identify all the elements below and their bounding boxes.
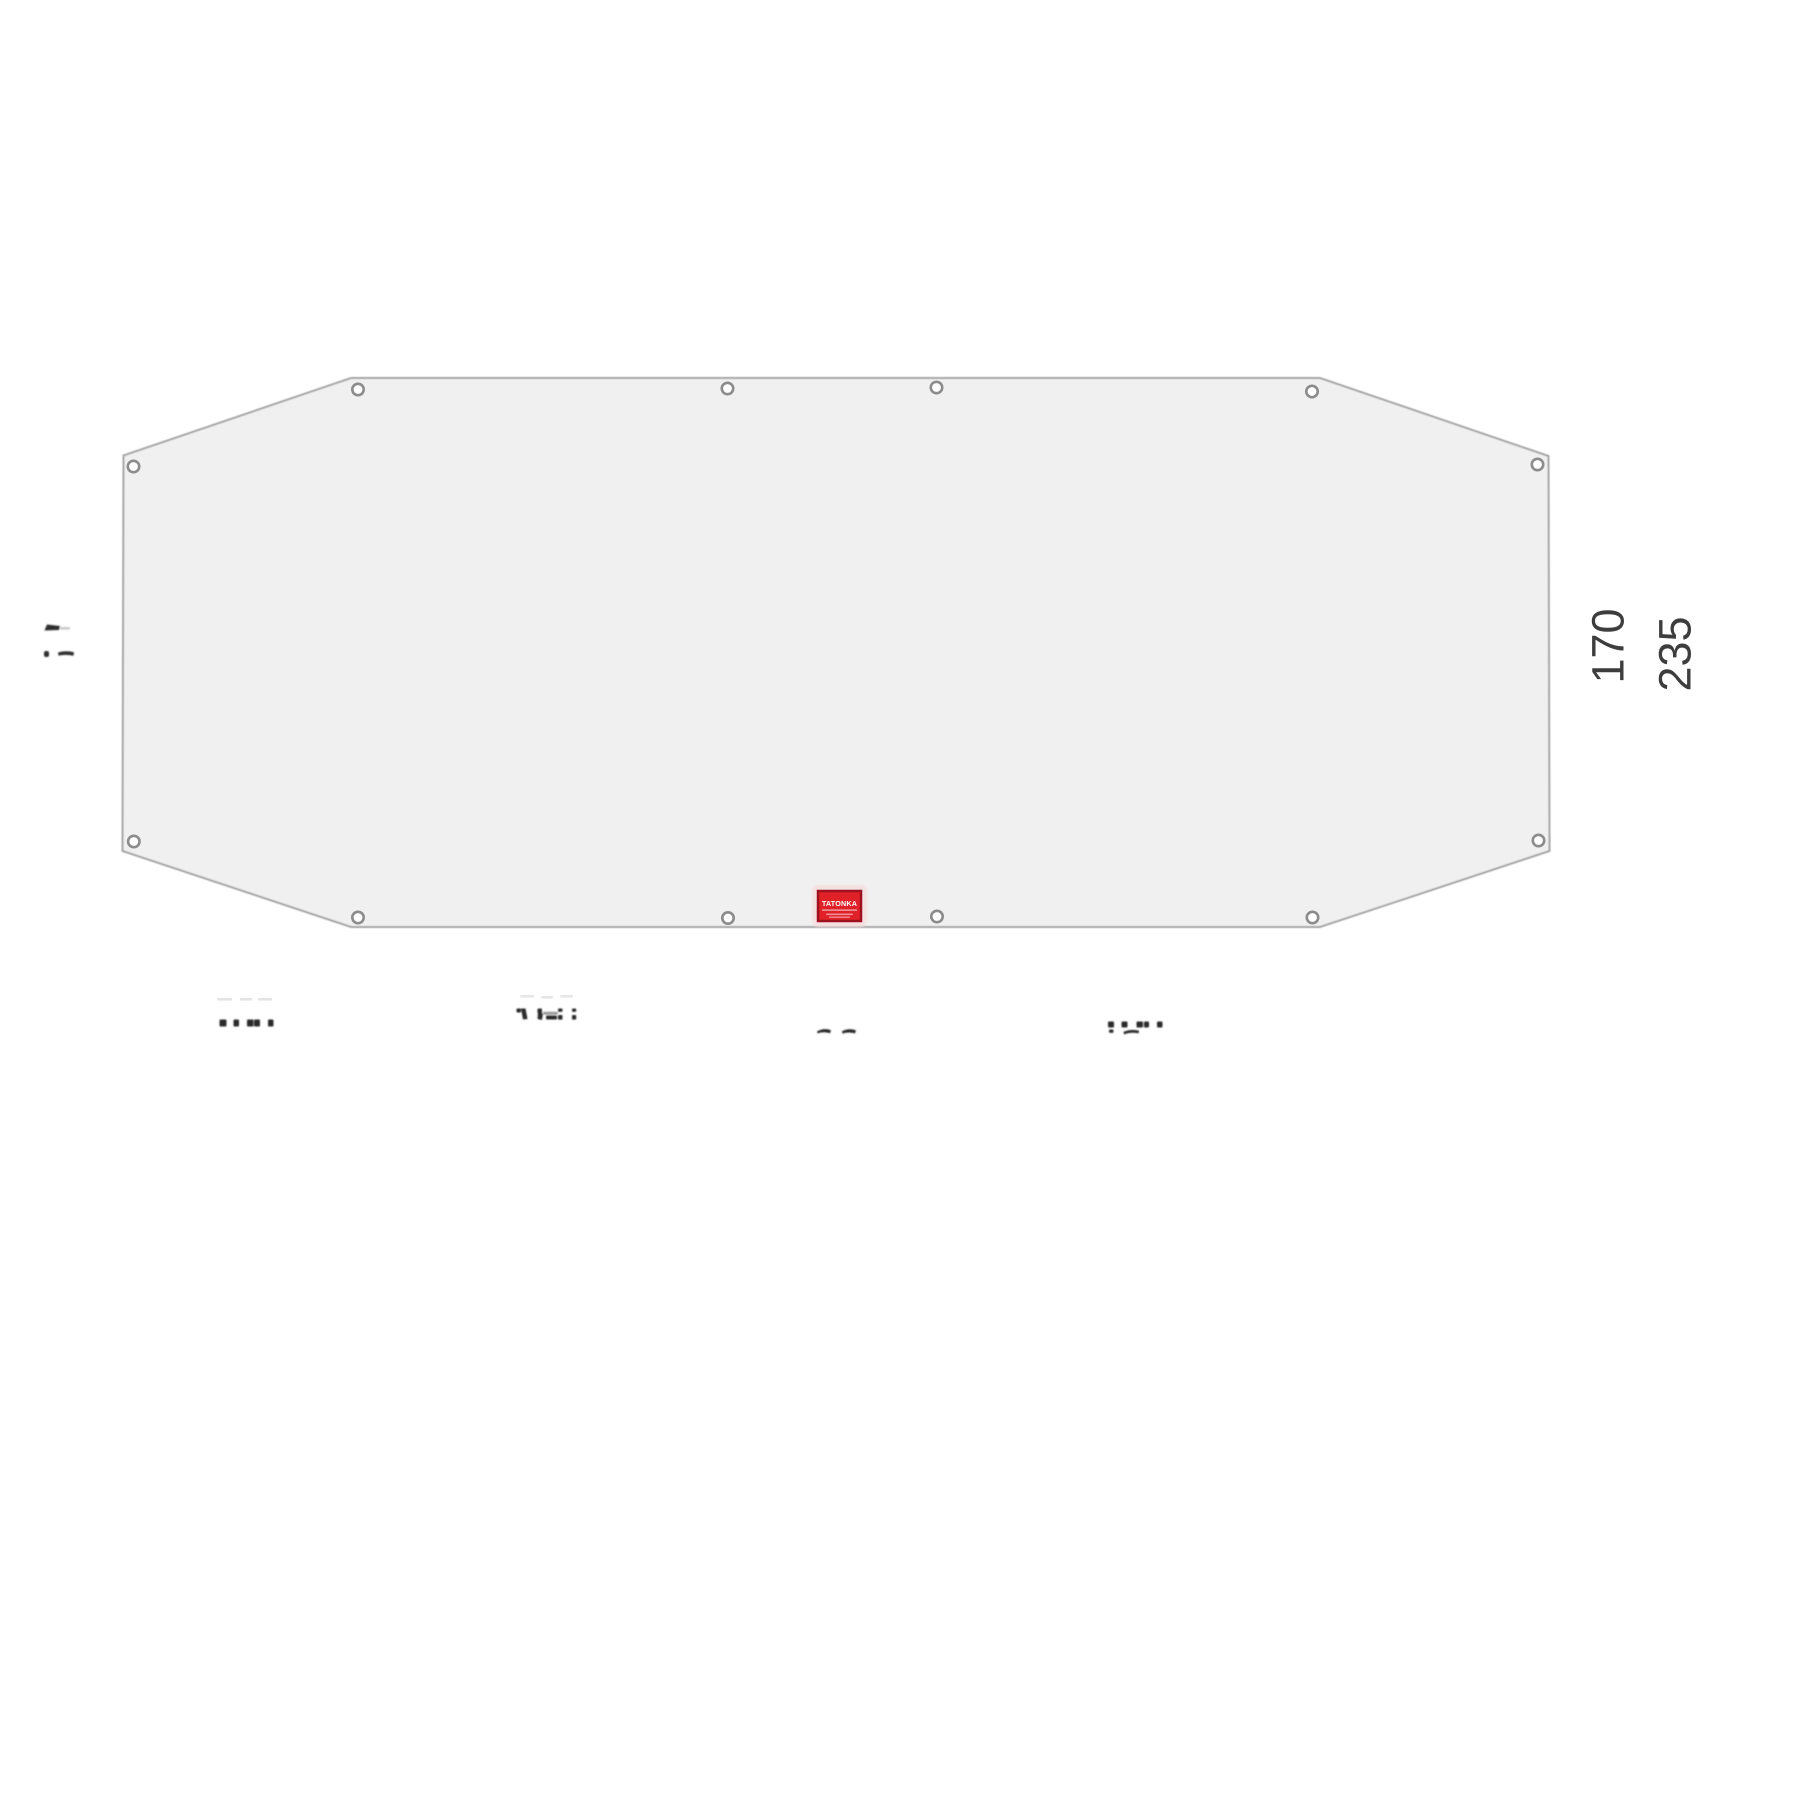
- svg-text:235: 235: [1650, 616, 1701, 691]
- svg-text:TATONKA: TATONKA: [822, 899, 857, 908]
- svg-text:170: 170: [1583, 608, 1634, 683]
